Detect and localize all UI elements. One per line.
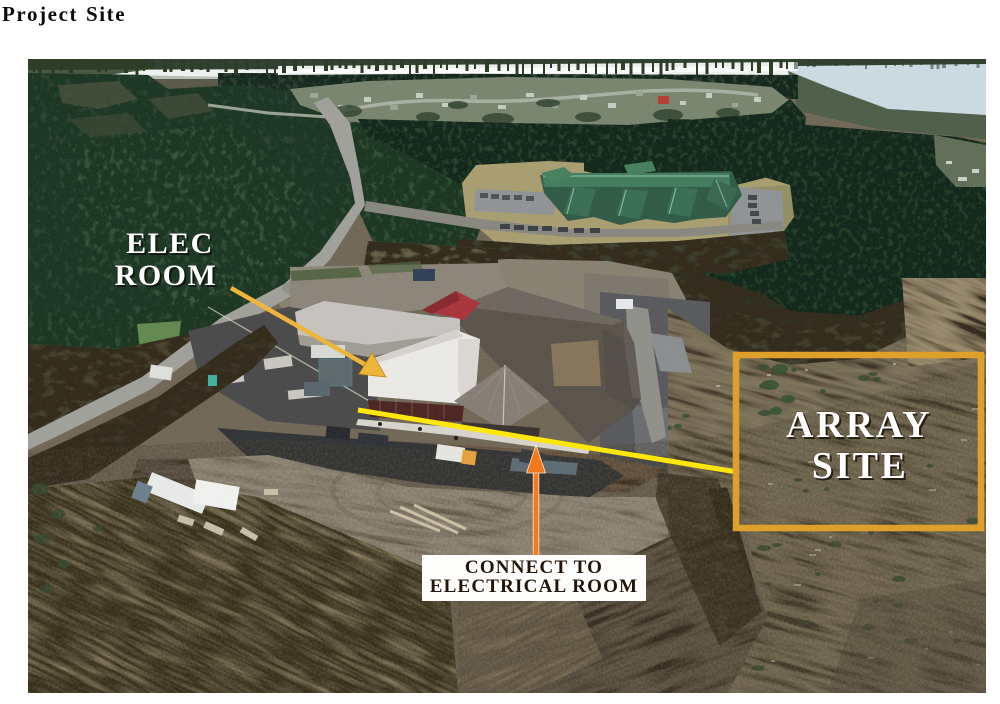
- svg-text:SITE: SITE: [812, 445, 909, 487]
- svg-text:CONNECT TO: CONNECT TO: [465, 557, 603, 578]
- svg-text:ROOM: ROOM: [115, 259, 218, 292]
- svg-text:ELECTRICAL ROOM: ELECTRICAL ROOM: [430, 576, 639, 597]
- svg-text:ARRAY: ARRAY: [786, 404, 932, 446]
- svg-text:ELEC: ELEC: [126, 227, 214, 260]
